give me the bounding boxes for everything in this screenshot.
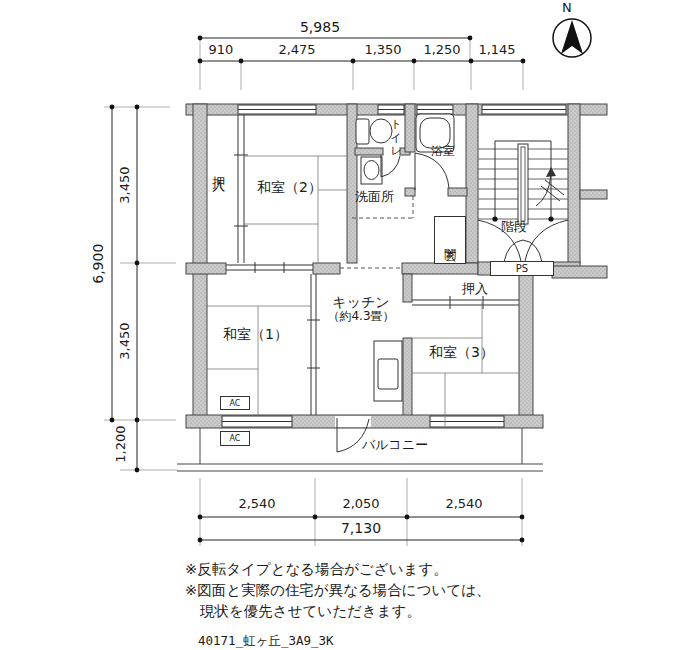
wall-bath-bottom-b bbox=[448, 188, 467, 196]
dim-left-balcony: 1,200 bbox=[114, 414, 128, 474]
ac-unit-balcony: AC bbox=[220, 431, 250, 446]
room-label-oshiire-upper: 押入 bbox=[211, 166, 225, 170]
stairs-group bbox=[478, 141, 568, 224]
note-line-2: ※図面と実際の住宅が異なる場合については、 bbox=[185, 580, 491, 601]
dim-bottom-seg2: 2,050 bbox=[331, 497, 391, 511]
wall-ps-extension bbox=[552, 266, 607, 278]
wall-bath-left bbox=[405, 104, 415, 152]
bath-door-arc bbox=[415, 153, 449, 188]
dim-top-seg4: 1,250 bbox=[412, 43, 472, 57]
room-label-genkan: 玄関 bbox=[442, 239, 459, 241]
dim-left-seg1: 3,450 bbox=[118, 155, 132, 215]
toilet-door-arc bbox=[381, 156, 400, 177]
room-label-oshiire-lower: 押入 bbox=[462, 282, 488, 296]
room-label-washitsu3: 和室（3） bbox=[429, 345, 494, 360]
toilet-tank bbox=[356, 119, 369, 144]
wall-unit-right bbox=[519, 274, 533, 426]
balcony-door-opening bbox=[335, 416, 371, 427]
room-label-toilet: トイレ bbox=[389, 111, 401, 152]
wall-toilet-bottom-a bbox=[355, 148, 383, 155]
dim-bottom-seg3: 2,540 bbox=[434, 497, 494, 511]
dim-bottom-seg1: 2,540 bbox=[227, 497, 287, 511]
wall-bath-bottom-a bbox=[405, 188, 415, 196]
genkan-box: 玄関 bbox=[434, 216, 466, 264]
dim-top-seg1: 910 bbox=[191, 43, 251, 57]
dim-top-seg3: 1,350 bbox=[353, 43, 413, 57]
ps-label: PS bbox=[516, 263, 528, 274]
dim-top-seg2: 2,475 bbox=[267, 43, 327, 57]
room-label-balcony: バルコニー bbox=[362, 438, 428, 452]
ac-unit-room: AC bbox=[220, 396, 250, 410]
ps-box: PS bbox=[490, 261, 554, 276]
room-label-stairs: 階段 bbox=[501, 220, 527, 234]
room-label-kitchen: キッチン （約4.3畳） bbox=[316, 295, 406, 324]
ac-label-room: AC bbox=[230, 399, 241, 408]
wall-stub-right bbox=[580, 190, 607, 199]
kitchen-name: キッチン bbox=[316, 295, 406, 310]
stair-handrail bbox=[518, 144, 528, 224]
disclaimer-notes: ※反転タイプとなる場合がございます。 ※図面と実際の住宅が異なる場合については、… bbox=[185, 559, 491, 622]
north-label: N bbox=[562, 1, 582, 15]
room-label-bath: 浴室 bbox=[431, 145, 455, 158]
room-label-washroom: 洗面所 bbox=[355, 190, 394, 204]
dim-bottom-total: 7,130 bbox=[331, 521, 391, 536]
note-line-1: ※反転タイプとなる場合がございます。 bbox=[185, 559, 491, 580]
wall-middle-b bbox=[313, 263, 340, 274]
floorplan-drawing bbox=[0, 0, 700, 650]
room-label-washitsu1: 和室（1） bbox=[223, 327, 288, 342]
wall-kitchen-right-b bbox=[403, 338, 412, 426]
dim-top-seg5: 1,145 bbox=[467, 43, 527, 57]
dim-top-total: 5,985 bbox=[270, 20, 370, 35]
wall-stair-left bbox=[466, 104, 478, 263]
plan-id: 40171_虹ヶ丘_3A9_3K bbox=[198, 633, 334, 650]
dim-left-total: 6,900 bbox=[91, 234, 106, 294]
floorplan-canvas: N 5,985 910 2,475 1,350 1,250 1,145 6,90… bbox=[0, 0, 700, 650]
wall-stair-right bbox=[568, 104, 580, 263]
ac-label-balcony: AC bbox=[230, 434, 241, 443]
wall-middle-a bbox=[186, 263, 226, 274]
north-arrow-icon bbox=[553, 19, 591, 57]
note-line-3: 現状を優先させていただきます。 bbox=[200, 601, 491, 622]
dim-left-seg2: 3,450 bbox=[118, 311, 132, 371]
room-label-washitsu2: 和室（2） bbox=[257, 180, 322, 195]
kitchen-size: （約4.3畳） bbox=[316, 310, 406, 323]
neighbor-entrance-door-arc bbox=[525, 220, 568, 261]
wall-middle-c bbox=[402, 263, 478, 274]
